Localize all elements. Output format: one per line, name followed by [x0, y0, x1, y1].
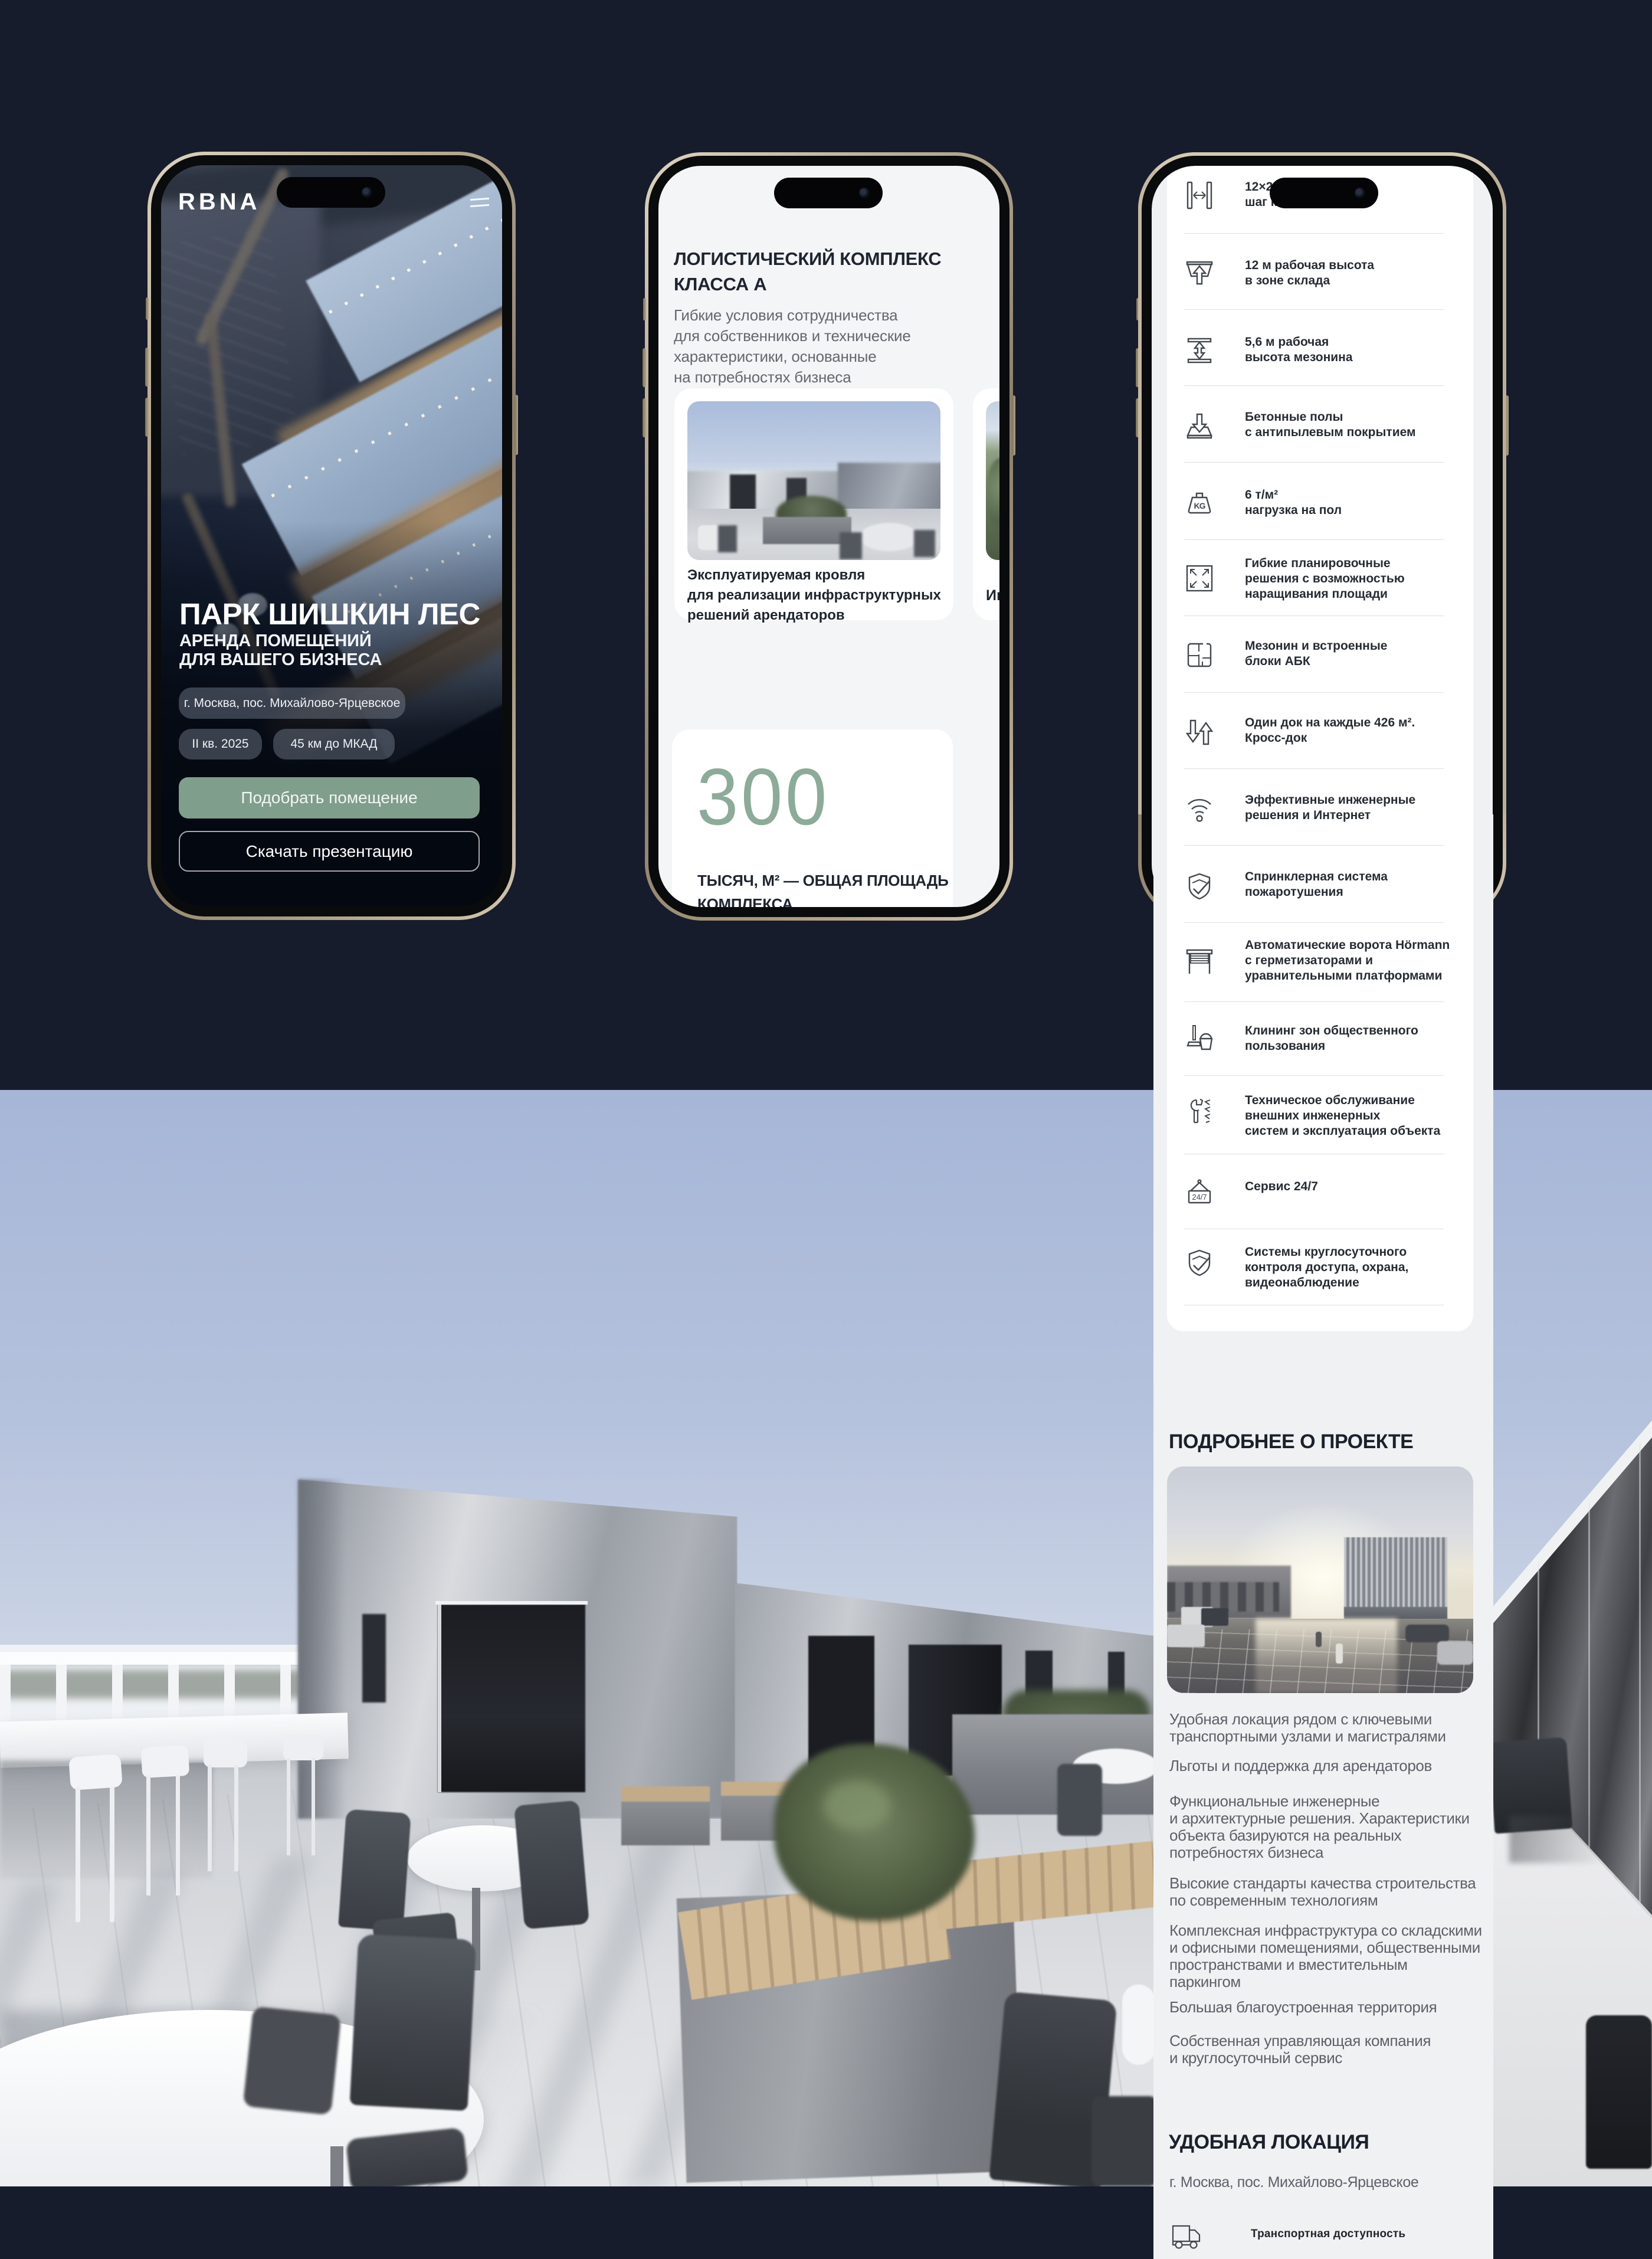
svg-text:KG: KG: [1194, 501, 1206, 510]
svg-text:24/7: 24/7: [1192, 1193, 1207, 1201]
